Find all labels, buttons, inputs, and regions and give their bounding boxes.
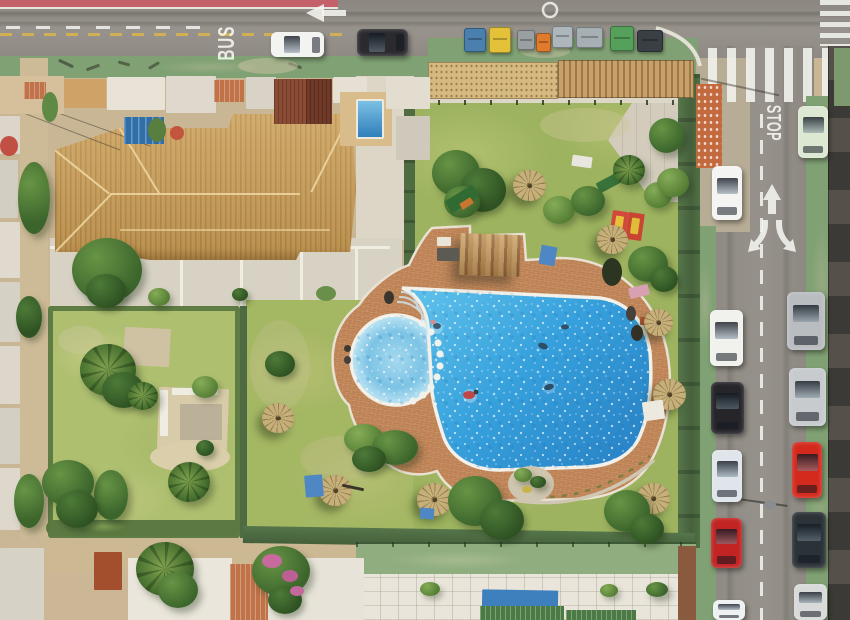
gray-car (789, 368, 826, 426)
plant (530, 476, 546, 488)
pool-edge-sitter (344, 356, 351, 364)
person (626, 306, 636, 321)
dark-bench (437, 248, 459, 261)
gray-roof (0, 408, 20, 464)
tree (158, 572, 198, 608)
tile-roof (696, 84, 722, 168)
gray-roof (0, 160, 18, 218)
white-van (794, 584, 827, 620)
bush (352, 446, 386, 472)
tree (630, 514, 664, 544)
black-car (792, 512, 826, 568)
red-umbrella (0, 136, 18, 156)
dark-object (602, 258, 622, 286)
blue-bin (464, 28, 486, 52)
gazebo-roof (459, 233, 520, 277)
pink-flowers (290, 586, 304, 596)
plant (196, 440, 214, 456)
tree (86, 274, 126, 308)
straw-umbrella (513, 170, 546, 201)
gray-bin (576, 27, 603, 48)
pool-edge-sitter (344, 345, 351, 352)
tree (18, 162, 50, 234)
tree (14, 474, 44, 528)
white-car (710, 310, 743, 366)
plant (600, 584, 618, 597)
pink-flowers (262, 554, 282, 568)
green-roof (566, 610, 636, 620)
tree (56, 490, 98, 528)
white-roof (246, 77, 276, 109)
green-roof (480, 606, 564, 620)
worn-grass (540, 108, 630, 142)
palm-tree (128, 382, 158, 410)
white-roof (166, 76, 216, 113)
roof-ridge (110, 193, 300, 195)
silver-car (712, 450, 742, 502)
tile-roof (214, 80, 244, 102)
patio-wall (300, 246, 303, 306)
painted-court (356, 542, 696, 576)
tree (192, 376, 218, 398)
tree (571, 186, 605, 216)
bush (316, 286, 336, 301)
edge-buildings (828, 46, 850, 620)
white-lane-line (6, 26, 206, 29)
blue-towel (420, 507, 435, 519)
white-car (712, 166, 742, 220)
bus-lane-marking: BUS (199, 17, 252, 70)
ruin-floor (180, 404, 222, 440)
tile-roof (24, 82, 46, 99)
plant (420, 582, 440, 596)
center-dashed-line (760, 114, 763, 620)
straw-umbrella (262, 403, 294, 433)
blue-lounger (538, 245, 557, 266)
red-umbrella (170, 126, 184, 140)
blue-lounger (304, 474, 324, 497)
plant (646, 582, 668, 597)
tree (16, 296, 42, 338)
orange-bin (536, 33, 551, 52)
bush (148, 288, 170, 306)
person (384, 291, 394, 304)
straw-pergola-roof (428, 62, 558, 99)
stop-marking: STOP (749, 100, 800, 146)
gray-terrace (396, 116, 430, 160)
white-roof (107, 77, 165, 110)
tree (94, 470, 128, 520)
straw-umbrella (644, 309, 673, 336)
gray-bin (552, 26, 573, 48)
red-car (711, 518, 742, 568)
round-bush (649, 118, 684, 153)
trash-bags (637, 30, 663, 52)
garden-fence (240, 306, 247, 538)
round-bush (657, 168, 689, 197)
fence-posts (412, 100, 696, 105)
person (631, 325, 643, 341)
rooftop-pool (356, 99, 384, 139)
patio-wall (355, 246, 358, 306)
gray-roof (0, 346, 20, 404)
ruin-wall (160, 390, 168, 436)
aerial-photo: BUS STOP (0, 0, 850, 620)
white-car (271, 32, 324, 57)
roof-ridge (120, 229, 330, 231)
flowers (522, 486, 532, 493)
straw-umbrella (597, 225, 628, 254)
white-car (713, 600, 745, 620)
round-bush (265, 351, 295, 377)
tree (650, 266, 678, 292)
black-car (711, 382, 744, 434)
gray-roof (0, 222, 20, 278)
main-building-roof (50, 112, 360, 260)
straw-umbrella (319, 475, 352, 506)
brown-roof (274, 79, 332, 124)
palm-tree (613, 155, 645, 185)
red-car (792, 442, 822, 498)
roof-hip (54, 149, 110, 194)
gray-car (787, 292, 825, 350)
tile-roof (64, 79, 106, 108)
zebra-crosswalk (820, 0, 850, 46)
bush (232, 288, 248, 301)
tree (480, 500, 524, 540)
white-roof (386, 77, 430, 109)
pink-flowers (282, 570, 298, 582)
green-igloo-bin (610, 26, 634, 51)
rust-wall (678, 546, 696, 620)
red-bike-lane (0, 0, 338, 9)
dark-car (357, 29, 408, 56)
tiled-pergola-roof (558, 60, 694, 98)
palm-tree (168, 462, 210, 502)
white-towel (642, 400, 665, 422)
brick-roof (94, 552, 122, 590)
plant (148, 118, 166, 142)
gray-roof (0, 548, 44, 620)
gray-bin (517, 30, 535, 50)
white-bench (437, 237, 451, 246)
plant (42, 92, 58, 122)
street-lamp (764, 500, 776, 510)
pale-green-car (798, 106, 828, 158)
grass-patch (834, 48, 850, 106)
yellow-bin (489, 27, 511, 53)
